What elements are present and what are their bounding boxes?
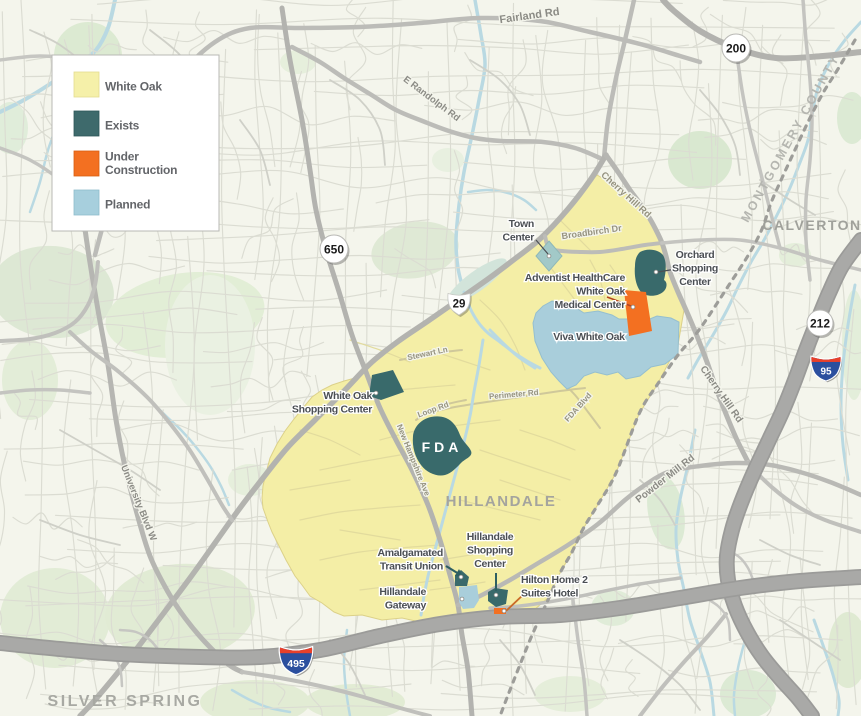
- svg-text:Shopping: Shopping: [672, 263, 718, 275]
- svg-text:Shopping Center: Shopping Center: [292, 404, 372, 416]
- svg-text:White Oak: White Oak: [323, 390, 372, 402]
- svg-text:Under: Under: [105, 150, 139, 164]
- svg-text:200: 200: [726, 41, 746, 55]
- svg-text:Center: Center: [679, 276, 711, 288]
- svg-text:Construction: Construction: [105, 163, 177, 177]
- svg-text:Hillandale: Hillandale: [379, 586, 426, 598]
- svg-text:Orchard: Orchard: [676, 249, 715, 261]
- svg-text:Center: Center: [474, 558, 506, 570]
- svg-text:95: 95: [820, 366, 832, 377]
- svg-text:Shopping: Shopping: [467, 545, 513, 557]
- svg-text:Center: Center: [503, 232, 535, 244]
- svg-text:Viva White Oak: Viva White Oak: [553, 331, 625, 343]
- svg-text:Medical Center: Medical Center: [555, 299, 626, 311]
- svg-text:Hillandale: Hillandale: [467, 531, 514, 543]
- svg-text:650: 650: [324, 242, 344, 256]
- svg-text:SILVER SPRING: SILVER SPRING: [48, 693, 203, 710]
- svg-text:Suites Hotel: Suites Hotel: [521, 588, 578, 600]
- svg-text:Adventist HealthCare: Adventist HealthCare: [525, 272, 626, 284]
- svg-text:FDA: FDA: [422, 439, 463, 455]
- svg-text:Amalgamated: Amalgamated: [377, 547, 443, 559]
- svg-text:Town: Town: [509, 218, 534, 230]
- svg-text:CALVERTON: CALVERTON: [762, 217, 861, 233]
- svg-text:Gateway: Gateway: [385, 600, 427, 612]
- svg-text:Planned: Planned: [105, 198, 150, 212]
- svg-text:Exists: Exists: [105, 119, 140, 133]
- svg-text:212: 212: [810, 316, 830, 330]
- svg-text:White Oak: White Oak: [105, 80, 162, 94]
- svg-text:495: 495: [287, 658, 305, 670]
- svg-text:Hilton Home 2: Hilton Home 2: [521, 574, 588, 586]
- svg-text:Transit Union: Transit Union: [380, 561, 443, 573]
- svg-text:HILLANDALE: HILLANDALE: [446, 493, 557, 510]
- svg-text:White Oak: White Oak: [576, 286, 625, 298]
- svg-text:29: 29: [453, 299, 466, 311]
